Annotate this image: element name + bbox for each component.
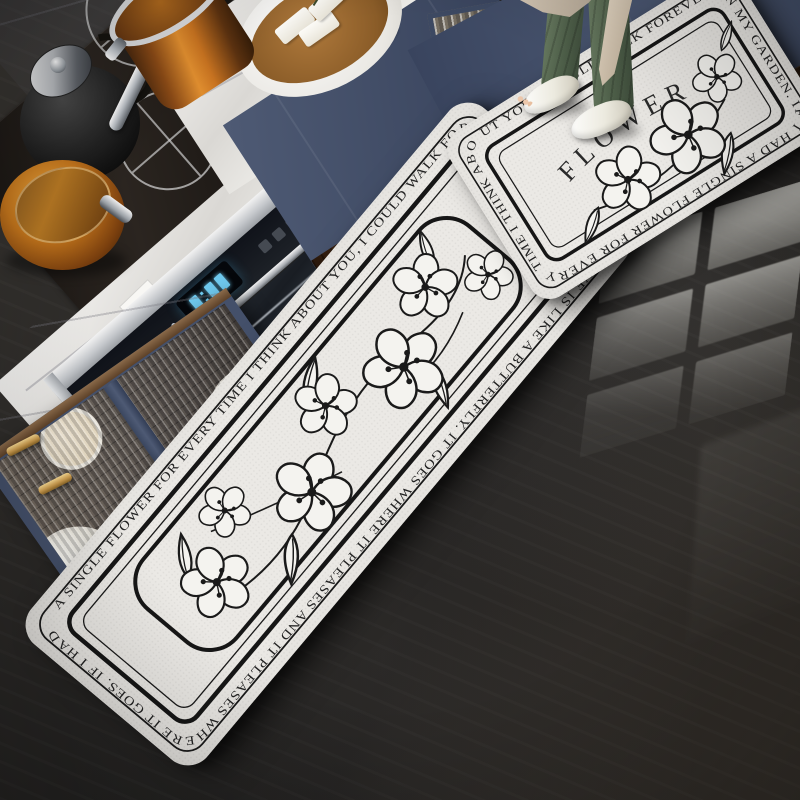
copper-pot [0, 160, 125, 270]
oven-button [271, 227, 287, 243]
flower-icon [258, 440, 365, 545]
person-standing [505, 0, 680, 180]
toes [515, 93, 533, 108]
kitchen-product-photo: ✿ ❀ [0, 0, 800, 800]
flower-icon [342, 307, 463, 428]
flower-icon [387, 251, 463, 324]
kettle-lid-knob [50, 57, 66, 73]
oven-button [257, 238, 273, 254]
flower-icon [189, 474, 259, 546]
flower-icon [287, 367, 363, 445]
